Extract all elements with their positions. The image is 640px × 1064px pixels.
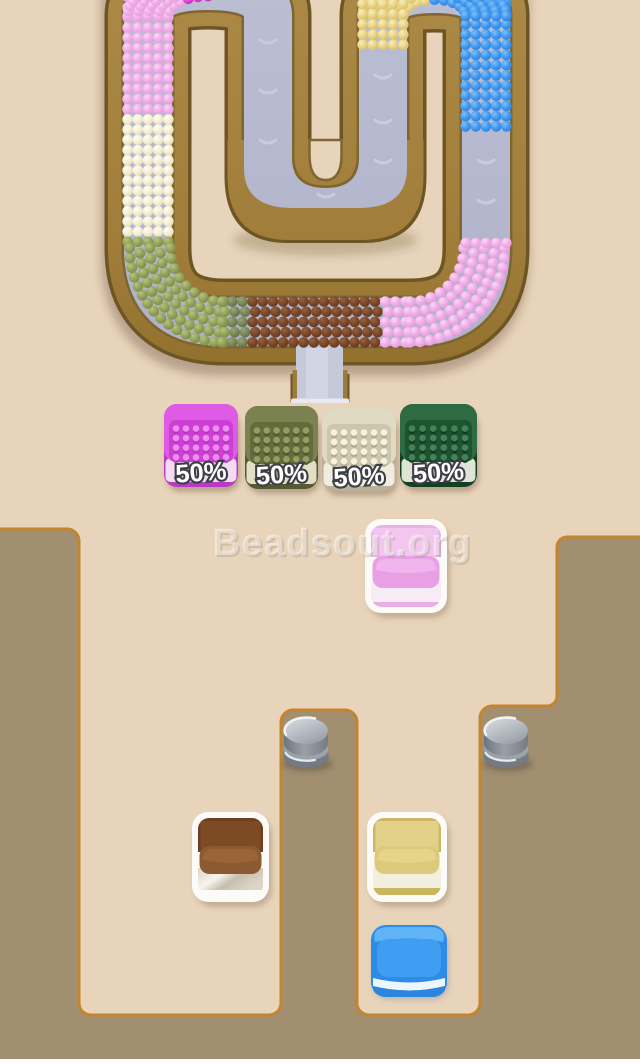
- svg-text:Beadsout.org: Beadsout.org: [212, 522, 471, 564]
- svg-text:50%: 50%: [255, 459, 308, 490]
- svg-text:50%: 50%: [412, 457, 465, 488]
- svg-text:50%: 50%: [174, 457, 227, 488]
- svg-text:50%: 50%: [332, 461, 385, 492]
